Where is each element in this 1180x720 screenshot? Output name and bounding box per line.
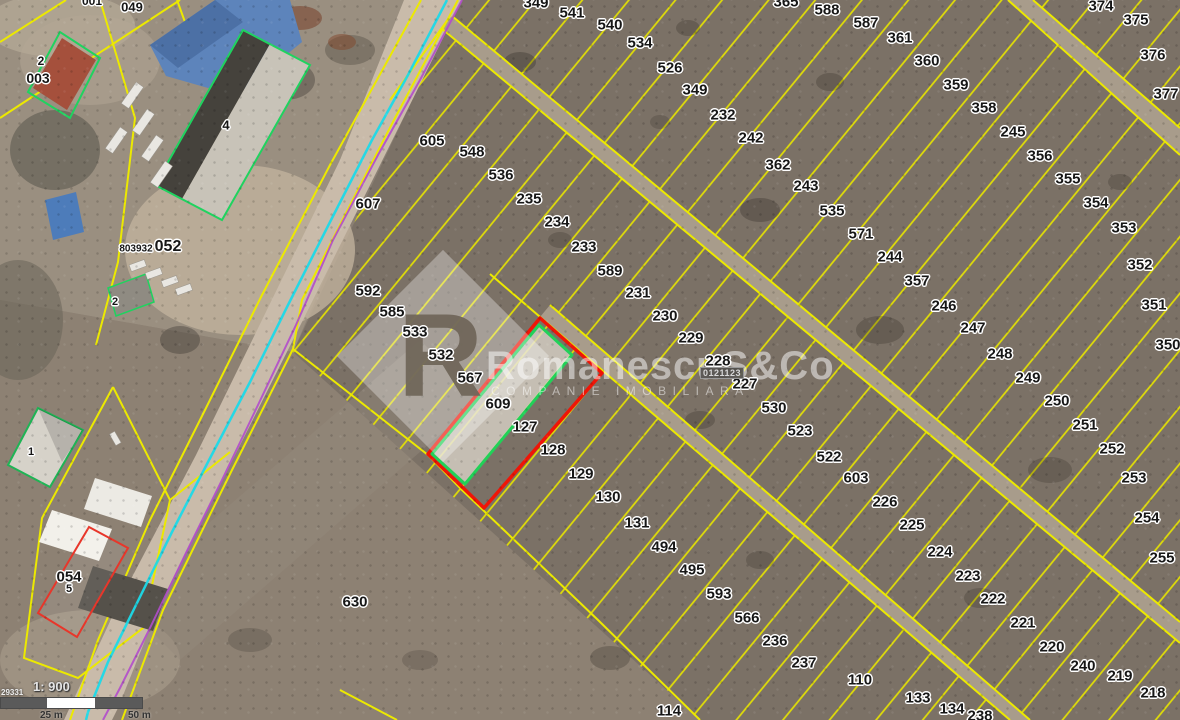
parcel-label: 523 — [787, 423, 812, 440]
parcel-label: 376 — [1140, 47, 1165, 64]
parcel-label: 254 — [1134, 510, 1159, 527]
parcel-label: 218 — [1140, 685, 1165, 702]
parcel-label: 236 — [762, 633, 787, 650]
parcel-label: 001 — [82, 0, 102, 8]
parcel-label: 1 — [28, 446, 34, 458]
parcel-label: 133 — [905, 690, 930, 707]
parcel-label: 522 — [816, 449, 841, 466]
parcel-label: 250 — [1044, 393, 1069, 410]
parcel-label: 530 — [761, 400, 786, 417]
parcel-label: 237 — [791, 655, 816, 672]
parcel-label: 540 — [597, 17, 622, 34]
scale-bar — [0, 697, 143, 709]
parcel-label: 220 — [1039, 639, 1064, 656]
parcel-label: 541 — [559, 5, 584, 22]
scale-ratio-label: 1: 900 — [33, 679, 70, 694]
cadastral-id-badge: 0121123 — [700, 367, 744, 379]
parcel-label: 360 — [914, 53, 939, 70]
parcel-label: 248 — [987, 346, 1012, 363]
parcel-label: 535 — [819, 203, 844, 220]
parcel-label: 222 — [980, 591, 1005, 608]
parcel-label: 494 — [651, 539, 676, 556]
scale-bar-segment — [47, 698, 95, 708]
parcel-label: 249 — [1015, 370, 1040, 387]
parcel-label: 362 — [765, 157, 790, 174]
parcel-label: 603 — [843, 470, 868, 487]
parcel-label: 221 — [1010, 615, 1035, 632]
parcel-label: 588 — [814, 2, 839, 19]
parcel-label: 534 — [627, 35, 652, 52]
parcel-label: 374 — [1088, 0, 1113, 15]
parcel-label: 127 — [512, 419, 537, 436]
parcel-label: 352 — [1127, 257, 1152, 274]
parcel-label: 377 — [1153, 86, 1178, 103]
parcel-label: 223 — [955, 568, 980, 585]
parcel-label: 246 — [931, 298, 956, 315]
parcel-label: 252 — [1099, 441, 1124, 458]
parcel-label: 532 — [428, 347, 453, 364]
parcel-label: 238 — [967, 708, 992, 720]
parcel-label: 361 — [887, 30, 912, 47]
parcel-label: 375 — [1123, 12, 1148, 29]
parcel-label: 234 — [544, 214, 569, 231]
parcel-label: 354 — [1083, 195, 1108, 212]
parcel-label: 609 — [485, 396, 510, 413]
scale-tick-50m: 50 m — [128, 710, 151, 720]
watermark-tagline-text: COMPANIE IMOBILIARĂ — [491, 384, 750, 398]
parcel-label: 233 — [571, 239, 596, 256]
parcel-label: 4 — [222, 118, 229, 133]
parcel-label: 357 — [904, 273, 929, 290]
parcel-label: 355 — [1055, 171, 1080, 188]
parcel-label: 231 — [625, 285, 650, 302]
parcel-label: 128 — [540, 442, 565, 459]
parcel-label: 134 — [939, 701, 964, 718]
parcel-label: 2 — [38, 54, 45, 68]
parcel-label: 605 — [419, 133, 444, 150]
scale-ref-number: 29331 — [1, 688, 23, 697]
parcel-label: 240 — [1070, 658, 1095, 675]
scale-bar-segment — [95, 698, 142, 708]
parcel-label: 131 — [624, 515, 649, 532]
parcel-label: 592 — [355, 283, 380, 300]
parcel-label: 224 — [927, 544, 952, 561]
parcel-label: 235 — [516, 191, 541, 208]
parcel-label: 219 — [1107, 668, 1132, 685]
parcel-label: 358 — [971, 100, 996, 117]
parcel-label: 566 — [734, 610, 759, 627]
parcel-label: 251 — [1072, 417, 1097, 434]
parcel-label: 052 — [155, 238, 182, 256]
parcel-label: 349 — [523, 0, 548, 12]
parcel-label: 356 — [1027, 148, 1052, 165]
parcel-label: 110 — [848, 672, 872, 689]
parcel-label: 630 — [342, 594, 367, 611]
parcel-label: 585 — [379, 304, 404, 321]
scale-tick-25m: 25 m — [40, 710, 63, 720]
parcel-label: 350 — [1155, 337, 1180, 354]
parcel-label: 587 — [853, 15, 878, 32]
parcel-label: 003 — [26, 70, 49, 86]
parcel-label: 244 — [877, 249, 902, 266]
parcel-label: 129 — [568, 466, 593, 483]
parcel-label: 526 — [657, 60, 682, 77]
parcel-label: 255 — [1149, 550, 1174, 567]
parcel-label: 253 — [1121, 470, 1146, 487]
parcel-label: 353 — [1111, 220, 1136, 237]
parcel-label: 589 — [597, 263, 622, 280]
parcel-label: 226 — [872, 494, 897, 511]
parcel-label: 607 — [355, 196, 380, 213]
parcel-label: 5 — [66, 583, 72, 595]
parcel-label: 351 — [1141, 297, 1166, 314]
parcel-label: 495 — [679, 562, 704, 579]
parcel-label: 571 — [848, 226, 873, 243]
parcel-label: 2 — [112, 296, 118, 308]
watermark-brand-text: RomanescuS&Co — [486, 346, 835, 386]
parcel-label: 114 — [657, 703, 681, 720]
scale-bar-segment — [1, 698, 47, 708]
parcel-label: 243 — [793, 178, 818, 195]
parcel-label: 533 — [402, 324, 427, 341]
cadastral-map-canvas: R RomanescuS&Co COMPANIE IMOBILIARĂ 3493… — [0, 0, 1180, 720]
parcel-label: 593 — [706, 586, 731, 603]
parcel-label: 230 — [652, 308, 677, 325]
parcel-label: 548 — [459, 144, 484, 161]
parcel-label: 365 — [773, 0, 798, 11]
parcel-label: 232 — [710, 107, 735, 124]
parcel-label: 242 — [738, 130, 763, 147]
parcel-label: 567 — [457, 370, 482, 387]
parcel-label: 536 — [488, 167, 513, 184]
parcel-label: 049 — [121, 0, 143, 15]
parcel-label: 245 — [1000, 124, 1025, 141]
parcel-label: 349 — [682, 82, 707, 99]
parcel-label: 803932 — [119, 244, 152, 255]
parcel-label: 130 — [595, 489, 620, 506]
parcel-label: 247 — [960, 320, 985, 337]
parcel-label: 225 — [899, 517, 924, 534]
parcel-label: 229 — [678, 330, 703, 347]
parcel-label: 359 — [943, 77, 968, 94]
